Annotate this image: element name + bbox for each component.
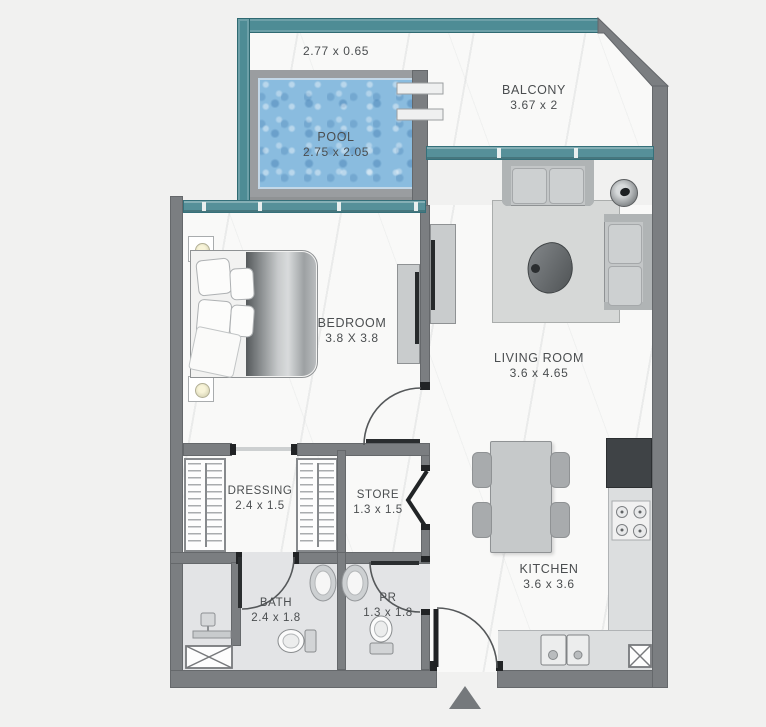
balcony-name: BALCONY [502, 83, 566, 98]
coffee-table-decor [531, 264, 540, 273]
sofa-armrest [585, 156, 594, 206]
wall-bedroom-partition [420, 205, 430, 386]
wall-dressing-store [337, 450, 346, 555]
pool-label: POOL 2.75 x 2.05 [303, 130, 369, 160]
sofa-armrest [502, 156, 511, 206]
dressing-wardrobe [296, 458, 338, 552]
door-stop [421, 465, 430, 471]
store-label: STORE 1.3 x 1.5 [353, 488, 403, 518]
door-stop [291, 444, 297, 455]
wardrobe-shelves [317, 463, 334, 547]
wall-pool-balcony [412, 70, 428, 210]
floorplan-canvas: 2.77 x 0.65 POOL 2.75 x 2.05 BALCONY 3.6… [0, 0, 766, 727]
door-stop [420, 382, 430, 390]
wall-dressing-top [297, 443, 430, 456]
bed-blanket [246, 252, 316, 376]
balcony-glass-wall-top [237, 18, 606, 33]
dressing-threshold [232, 447, 297, 451]
door-stop [421, 556, 430, 562]
wall-hall [421, 612, 430, 670]
living-tv [431, 240, 435, 310]
dressing-dims: 2.4 x 1.5 [228, 499, 293, 514]
fridge [606, 438, 652, 488]
door-stop [293, 552, 299, 564]
armchair-cushion [608, 224, 642, 264]
dining-chair [550, 452, 570, 488]
dining-table [490, 441, 552, 553]
bedroom-dims: 3.8 X 3.8 [318, 331, 387, 346]
wardrobe-shelves [188, 463, 201, 547]
window-mullion [202, 202, 206, 211]
window-mullion [414, 202, 418, 211]
living-room-name: LIVING ROOM [494, 351, 584, 366]
wall-bath-top [294, 552, 430, 564]
wardrobe-shelves [300, 463, 313, 547]
wall-bottom-left [170, 670, 437, 688]
entry-arrow-icon [449, 686, 481, 709]
window-mullion [574, 148, 578, 158]
powder-room-name: PR [363, 591, 413, 606]
bath-dims: 2.4 x 1.8 [251, 611, 301, 626]
powder-room-label: PR 1.3 x 1.8 [363, 591, 413, 621]
pillow [195, 257, 233, 296]
window-mullion [337, 202, 341, 211]
lamp-icon [195, 383, 210, 398]
store-name: STORE [353, 488, 403, 503]
armchair-back [643, 214, 652, 310]
living-balcony-window [426, 146, 654, 160]
kitchen-counter-bottom [498, 630, 652, 670]
pillow [229, 267, 255, 300]
wall-shower-bath [231, 562, 241, 646]
wall-bath-pr [337, 552, 346, 670]
wall-bottom-right [497, 670, 668, 688]
door-stop [421, 524, 430, 530]
sofa-cushion [512, 168, 547, 204]
store-dims: 1.3 x 1.5 [353, 503, 403, 518]
dressing-name: DRESSING [228, 484, 293, 499]
armchair-cushion [608, 266, 642, 306]
bedroom-window [183, 200, 426, 213]
kitchen-dims: 3.6 x 3.6 [519, 577, 578, 592]
dining-chair [550, 502, 570, 538]
powder-room-dims: 1.3 x 1.8 [363, 606, 413, 621]
bedroom-label: BEDROOM 3.8 X 3.8 [318, 316, 387, 346]
door-stop [496, 661, 503, 671]
bedroom-name: BEDROOM [318, 316, 387, 331]
bed-sheet [188, 326, 242, 379]
pool-glass-wall-left [237, 18, 250, 206]
door-stop [230, 444, 236, 455]
dressing-label: DRESSING 2.4 x 1.5 [228, 484, 293, 514]
wardrobe-shelves [205, 463, 222, 547]
wall-dressing-top [183, 443, 232, 456]
dining-chair [472, 502, 492, 538]
sofa-cushion [549, 168, 584, 204]
door-stop [421, 609, 430, 615]
dressing-wardrobe [184, 458, 226, 552]
balcony-label: BALCONY 3.67 x 2 [502, 83, 566, 113]
wall-left-outer [170, 196, 183, 688]
kitchen-label: KITCHEN 3.6 x 3.6 [519, 562, 578, 592]
window-mullion [258, 202, 262, 211]
balcony-dims: 3.67 x 2 [502, 98, 566, 113]
door-stop [430, 661, 437, 671]
dining-chair [472, 452, 492, 488]
door-stop [236, 552, 242, 564]
bath-name: BATH [251, 596, 301, 611]
armchair-armrest [604, 214, 652, 222]
pool-deck-dimension: 2.77 x 0.65 [303, 44, 369, 58]
nightstand [188, 376, 214, 402]
pool-name: POOL [303, 130, 369, 145]
wall-right-outer [652, 84, 668, 688]
living-room-label: LIVING ROOM 3.6 x 4.65 [494, 351, 584, 381]
pool-dims: 2.75 x 2.05 [303, 145, 369, 160]
bath-label: BATH 2.4 x 1.8 [251, 596, 301, 626]
kitchen-name: KITCHEN [519, 562, 578, 577]
window-mullion [497, 148, 501, 158]
bedroom-tv [415, 272, 419, 344]
living-room-dims: 3.6 x 4.65 [494, 366, 584, 381]
